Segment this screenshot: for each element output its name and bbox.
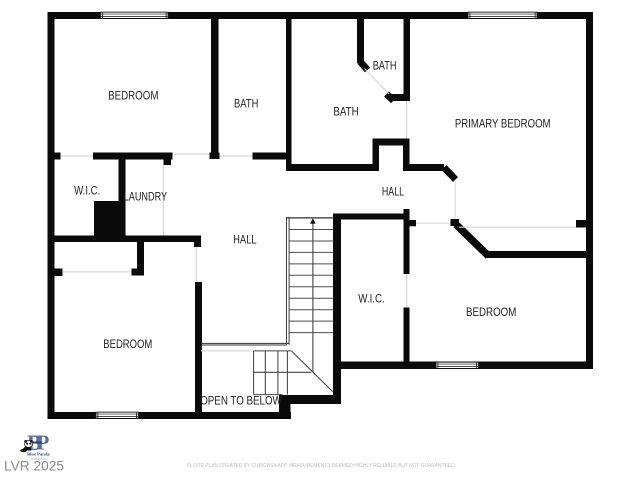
svg-text:HALL: HALL	[382, 184, 405, 198]
svg-text:BEDROOM: BEDROOM	[466, 305, 516, 319]
svg-text:BEDROOM: BEDROOM	[108, 89, 158, 103]
svg-text:W.I.C.: W.I.C.	[74, 183, 100, 197]
svg-text:Blue Panda: Blue Panda	[27, 451, 50, 456]
svg-text:FLOOR PLAN CREATED BY CUBICASA: FLOOR PLAN CREATED BY CUBICASA APP. MEAS…	[187, 463, 456, 469]
svg-text:BATH: BATH	[373, 59, 397, 73]
svg-text:BATH: BATH	[333, 105, 358, 119]
svg-text:PRIMARY BEDROOM: PRIMARY BEDROOM	[455, 116, 551, 130]
svg-text:HALL: HALL	[233, 232, 257, 246]
svg-text:LVR 2025: LVR 2025	[4, 458, 64, 474]
svg-text:OPEN TO BELOW: OPEN TO BELOW	[200, 394, 282, 408]
svg-text:LAUNDRY: LAUNDRY	[124, 190, 167, 204]
svg-text:W.I.C.: W.I.C.	[358, 291, 385, 305]
svg-text:BATH: BATH	[234, 96, 258, 110]
svg-text:BEDROOM: BEDROOM	[103, 337, 152, 351]
